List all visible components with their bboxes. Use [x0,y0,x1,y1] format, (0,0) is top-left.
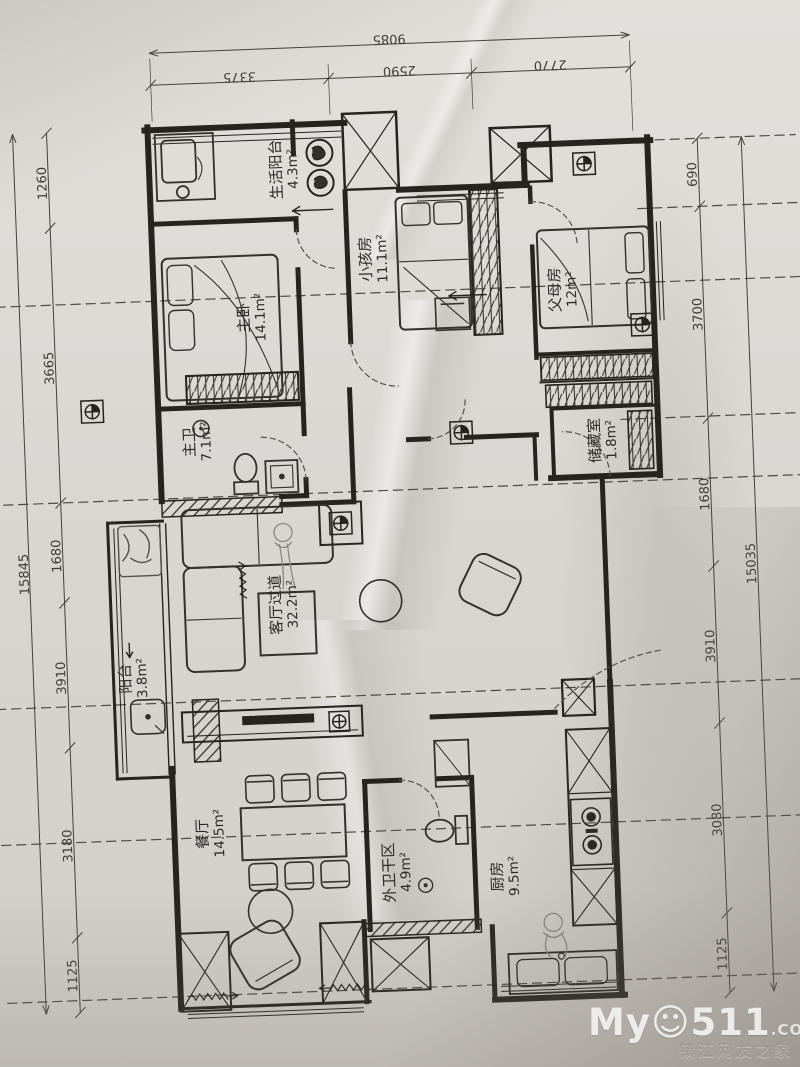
dim-top-seg0: 3375 [223,68,257,84]
wardrobe-icon-kids [469,189,503,335]
wardrobe-icon-parents [540,353,653,380]
svg-text:外卫干区: 外卫干区 [379,842,399,903]
dim-right-seg2: 1680 [697,477,713,511]
svg-text:客厅过道: 客厅过道 [266,574,286,635]
dim-left-seg1: 3665 [42,351,58,385]
dim-right-seg1: 3700 [690,298,706,332]
dim-top-seg1: 2590 [383,62,417,78]
svg-text:32.2m²: 32.2m² [284,580,302,629]
wardrobe-icon-parents2 [546,381,653,407]
watermark: My☺511.COM 镇江网友之家 [588,1004,793,1059]
wardrobe-icon-master [186,372,299,404]
svg-text:4.3m²: 4.3m² [284,149,302,190]
drawing: 生活阳台 4.3m² 主卧 14.1m² 小孩房 11.1m² 父母房 12m²… [0,16,800,1026]
svg-text:小孩房: 小孩房 [356,236,376,282]
storage-shelf-icon [628,410,654,469]
watermark-prefix: My [588,1001,651,1044]
svg-text:3.8m²: 3.8m² [134,658,152,699]
desk-chair-icon-kids [435,297,470,330]
round-table-icon [359,579,403,623]
watermark-tld: .COM [771,1021,800,1039]
sofa-icon [181,505,337,673]
stove-icon [570,798,613,865]
svg-text:阳台: 阳台 [116,663,135,694]
svg-text:主卧: 主卧 [234,302,253,333]
toilet-icon-master [233,453,259,494]
floor-plan-svg: 生活阳台 4.3m² 主卧 14.1m² 小孩房 11.1m² 父母房 12m²… [0,0,800,1067]
room-label-balcony: 阳台 3.8m² [116,658,152,699]
dim-top-seg2: 2770 [533,56,567,72]
smiley-icon: ☺ [651,1001,691,1044]
armchair-icon-living [455,550,524,619]
bed-icon-kids [395,195,472,330]
svg-text:14.1m²: 14.1m² [252,293,270,342]
floor-plan-photo: 生活阳台 4.3m² 主卧 14.1m² 小孩房 11.1m² 父母房 12m²… [0,0,800,1067]
balcony-washer-icon [118,525,162,577]
svg-text:父母房: 父母房 [545,267,565,313]
room-label-living-corridor: 客厅过道 32.2m² [266,574,302,635]
dim-left-seg4: 3180 [60,829,76,863]
washing-machine-icon [306,139,334,196]
armchair-icon-corner [226,916,304,994]
room-label-guest-bath: 外卫干区 4.9m² [379,842,415,903]
svg-text:14.5m²: 14.5m² [211,809,229,858]
svg-text:11.1m²: 11.1m² [374,234,392,283]
watermark-subtitle: 镇江网友之家 [588,1043,793,1059]
dim-left-seg0: 1260 [35,167,51,201]
room-label-dining: 餐厅 14.5m² [193,809,229,859]
side-table-icon [248,888,294,934]
dim-right-seg5: 1125 [715,937,731,971]
room-label-storage: 储藏室 1.8m² [585,417,621,463]
dim-right-overall: 15035 [744,543,761,585]
svg-text:7.1m²: 7.1m² [198,421,216,462]
svg-text:厨房: 厨房 [488,861,507,892]
watermark-brand: My☺511.COM [588,1004,793,1041]
dining-table-icon [239,772,349,891]
svg-text:4.9m²: 4.9m² [397,852,415,893]
floor-drain-dot [424,883,428,887]
dim-right-seg4: 3080 [710,803,726,837]
svg-text:生活阳台: 生活阳台 [266,139,286,200]
dim-left-seg2: 1680 [49,539,65,573]
toilet-icon-guest [425,816,468,846]
dim-right-seg0: 690 [685,162,701,187]
svg-text:9.5m²: 9.5m² [506,856,524,897]
dim-left-overall: 15845 [17,553,34,595]
svg-text:1.8m²: 1.8m² [603,419,621,460]
dim-left-seg5: 1125 [65,959,81,993]
dim-right-seg3: 3910 [703,629,719,663]
dim-left-seg3: 3910 [54,661,70,695]
shower-icon [265,460,298,493]
room-label-kids-room: 小孩房 11.1m² [356,234,392,284]
room-label-kitchen: 厨房 9.5m² [488,856,524,897]
svg-text:12m²: 12m² [563,271,580,307]
room-label-life-balcony: 生活阳台 4.3m² [266,139,302,200]
room-label-master-bath: 主卫 7.1m² [180,421,216,462]
kitchen-counter-icon [566,728,617,926]
svg-text:主卫: 主卫 [180,427,199,458]
dim-top-overall: 9085 [372,30,406,46]
watermark-suffix: 511 [691,1001,771,1044]
svg-text:餐厅: 餐厅 [193,818,212,849]
room-label-parents-room: 父母房 12m² [545,266,581,312]
svg-text:储藏室: 储藏室 [585,418,605,464]
